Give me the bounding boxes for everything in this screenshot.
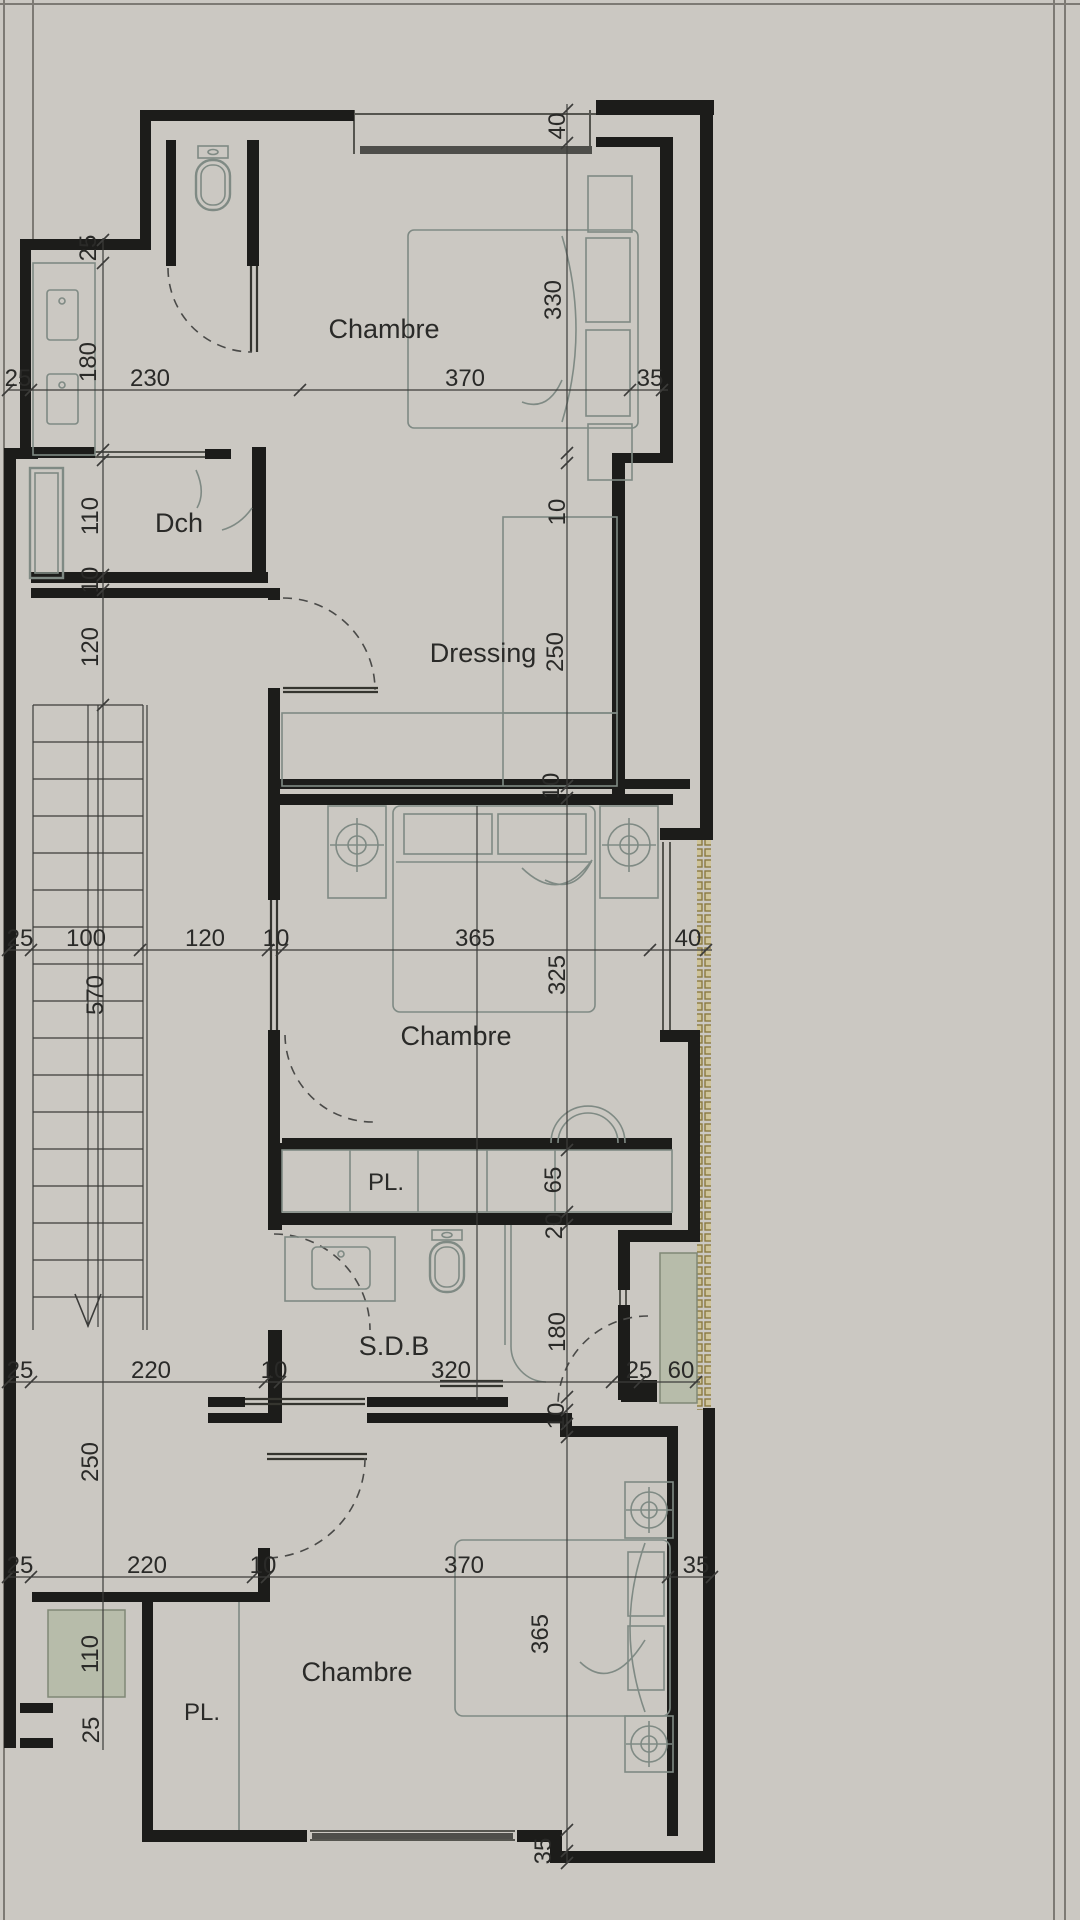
- nightstand-icon: [588, 424, 632, 480]
- dim-10-mid-wall: 10: [538, 773, 565, 800]
- dim-40-top: 40: [544, 113, 571, 140]
- dim-10-dressing-wall: 10: [544, 499, 571, 526]
- bed-icon: [408, 176, 638, 480]
- dim-10-dch-wall: 10: [77, 567, 104, 594]
- dim-110-planter: 110: [77, 1635, 104, 1673]
- dim-rowD-10: 10: [250, 1552, 277, 1579]
- arched-shower-icon: [551, 1106, 625, 1143]
- dim-rowD-220: 220: [127, 1552, 167, 1579]
- floor-plan-canvas: Chambre Dch Dressing Chambre PL. S.D.B C…: [0, 0, 1080, 1920]
- room-label-chambre-bottom: Chambre: [301, 1657, 412, 1687]
- room-label-pl-mid: PL.: [368, 1169, 404, 1196]
- dim-250-hall-bottom: 250: [77, 1442, 104, 1482]
- dim-rowB-10: 10: [263, 925, 290, 952]
- dim-rowB-25: 25: [7, 925, 34, 952]
- nightstand-icon: [588, 176, 632, 232]
- dim-570-stairs: 570: [82, 975, 109, 1015]
- dim-rowD-370: 370: [444, 1552, 484, 1579]
- room-label-pl-bottom: PL.: [184, 1699, 220, 1726]
- dim-365-chambre-bottom: 365: [527, 1614, 554, 1654]
- window: [95, 110, 670, 1840]
- dim-rowA-230: 230: [130, 365, 170, 392]
- toilet-icon: [196, 146, 230, 210]
- dim-25-left-top: 25: [75, 235, 102, 262]
- dim-250-dressing: 250: [542, 632, 569, 672]
- room-label-chambre-mid: Chambre: [400, 1021, 511, 1051]
- dimension-lines: [2, 104, 718, 1869]
- walls: [4, 100, 715, 1863]
- dim-rowB-365: 365: [455, 925, 495, 952]
- dim-rowC-60: 60: [668, 1357, 695, 1384]
- dim-330-chambre-top: 330: [540, 280, 567, 320]
- dim-10-sdb-wall: 10: [543, 1403, 570, 1430]
- dim-25-niche: 25: [78, 1717, 105, 1744]
- dim-rowA-35: 35: [637, 365, 664, 392]
- dim-rowC-220: 220: [131, 1357, 171, 1384]
- shower-tray-icon: [30, 468, 252, 578]
- dim-20-wall: 20: [541, 1213, 568, 1240]
- stairs: [33, 705, 147, 1330]
- room-label-dressing: Dressing: [430, 638, 537, 668]
- dim-rowB-120: 120: [185, 925, 225, 952]
- dim-rowC-320: 320: [431, 1357, 471, 1384]
- bed-icon: [328, 806, 658, 1012]
- dim-rowA-370: 370: [445, 365, 485, 392]
- room-label-chambre-top: Chambre: [328, 314, 439, 344]
- dim-35-bottom-wall: 35: [530, 1838, 557, 1865]
- dim-rowD-25: 25: [7, 1552, 34, 1579]
- dim-rowB-40: 40: [675, 925, 702, 952]
- dim-120-hall: 120: [77, 627, 104, 667]
- dim-rowA-25: 25: [5, 365, 32, 392]
- floor-plan-drawing: Chambre Dch Dressing Chambre PL. S.D.B C…: [0, 0, 1080, 1920]
- dim-180-sdb: 180: [544, 1312, 571, 1352]
- dim-rowC-25: 25: [7, 1357, 34, 1384]
- dim-rowD-35: 35: [683, 1552, 710, 1579]
- dim-180-vanity: 180: [75, 342, 102, 382]
- dim-65-closet: 65: [540, 1167, 567, 1194]
- bed-icon: [455, 1482, 673, 1772]
- shower-screen: [505, 1225, 546, 1382]
- dim-110-dch: 110: [77, 497, 104, 535]
- door-arcs: [168, 268, 648, 1558]
- dim-rowC-25b: 25: [626, 1357, 653, 1384]
- bathroom-sink-icon: [285, 1237, 395, 1301]
- room-label-dch: Dch: [155, 508, 203, 538]
- dim-325-chambre-mid: 325: [544, 955, 571, 995]
- toilet-icon: [430, 1230, 464, 1292]
- dim-rowB-100: 100: [66, 925, 106, 952]
- room-label-sdb: S.D.B: [359, 1331, 430, 1361]
- dim-rowC-10: 10: [261, 1357, 288, 1384]
